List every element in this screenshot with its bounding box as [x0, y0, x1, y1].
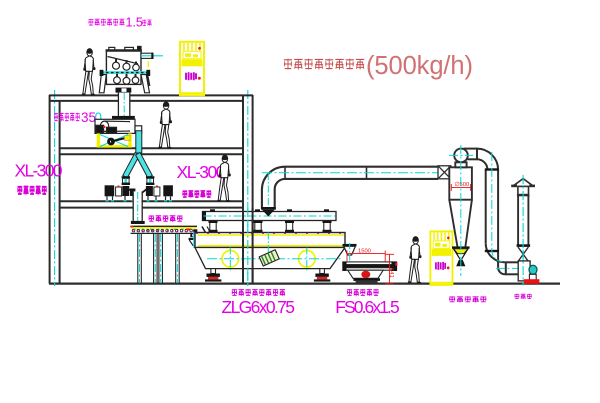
svg-text:1500: 1500	[358, 249, 371, 255]
svg-text:541: 541	[388, 268, 394, 278]
svg-text:1.5: 1.5	[126, 15, 143, 29]
svg-text:∅500: ∅500	[455, 181, 470, 188]
svg-text:FS0.6x1.5: FS0.6x1.5	[335, 297, 400, 317]
svg-text:(500kg/h): (500kg/h)	[366, 52, 473, 80]
svg-text:ZLG6x0.75: ZLG6x0.75	[222, 297, 296, 317]
svg-text:XL-300: XL-300	[15, 161, 63, 181]
svg-text:XL-300: XL-300	[177, 162, 226, 182]
